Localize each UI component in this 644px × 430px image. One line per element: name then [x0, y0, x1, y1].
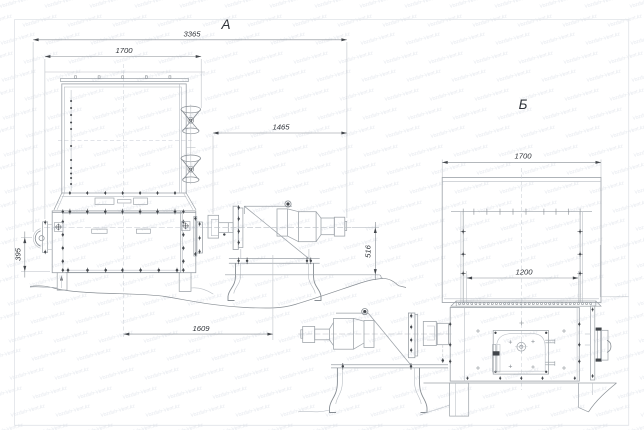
svg-text:1465: 1465 — [272, 123, 290, 132]
svg-text:1609: 1609 — [192, 324, 210, 333]
svg-text:1200: 1200 — [515, 268, 533, 277]
svg-text:1700: 1700 — [514, 152, 532, 161]
svg-text:395: 395 — [13, 247, 22, 261]
svg-text:3365: 3365 — [183, 30, 201, 39]
svg-text:А: А — [220, 17, 230, 32]
svg-text:516: 516 — [364, 244, 373, 258]
svg-text:1700: 1700 — [115, 46, 133, 55]
svg-text:Б: Б — [519, 97, 528, 112]
